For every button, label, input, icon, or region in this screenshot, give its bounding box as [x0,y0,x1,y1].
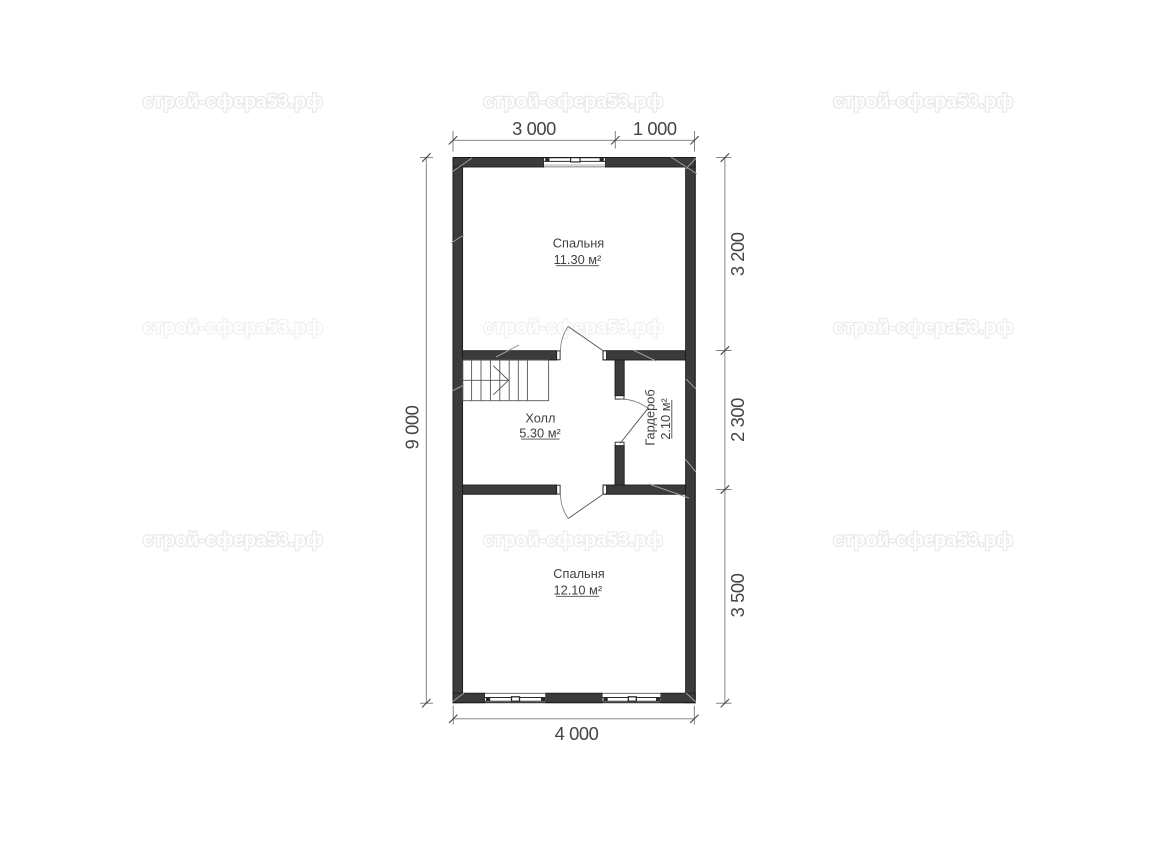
svg-text:Гардероб: Гардероб [643,389,658,445]
svg-text:12.10 м²: 12.10 м² [553,583,602,598]
svg-text:5.30 м²: 5.30 м² [519,425,561,440]
svg-text:11.30 м²: 11.30 м² [554,252,602,267]
svg-text:3 500: 3 500 [727,573,748,617]
svg-text:строй-сфера53.рф: строй-сфера53.рф [833,91,1013,112]
svg-text:2 300: 2 300 [727,398,748,442]
svg-text:Холл: Холл [525,410,555,425]
svg-text:Спальня: Спальня [553,566,604,581]
svg-text:строй-сфера53.рф: строй-сфера53.рф [483,91,663,112]
svg-text:строй-сфера53.рф: строй-сфера53.рф [143,317,323,338]
svg-text:1 000: 1 000 [633,118,677,139]
svg-text:строй-сфера53.рф: строй-сфера53.рф [143,530,323,551]
svg-text:3 200: 3 200 [727,232,748,276]
svg-text:3 000: 3 000 [512,118,556,139]
svg-text:2.10 м²: 2.10 м² [658,398,673,440]
svg-text:строй-сфера53.рф: строй-сфера53.рф [833,530,1013,551]
svg-text:Спальня: Спальня [553,236,604,251]
svg-text:строй-сфера53.рф: строй-сфера53.рф [483,530,663,551]
svg-text:9 000: 9 000 [402,405,423,449]
svg-text:4 000: 4 000 [555,723,599,744]
svg-text:строй-сфера53.рф: строй-сфера53.рф [833,317,1013,338]
svg-text:строй-сфера53.рф: строй-сфера53.рф [483,317,663,338]
svg-text:строй-сфера53.рф: строй-сфера53.рф [143,91,323,112]
